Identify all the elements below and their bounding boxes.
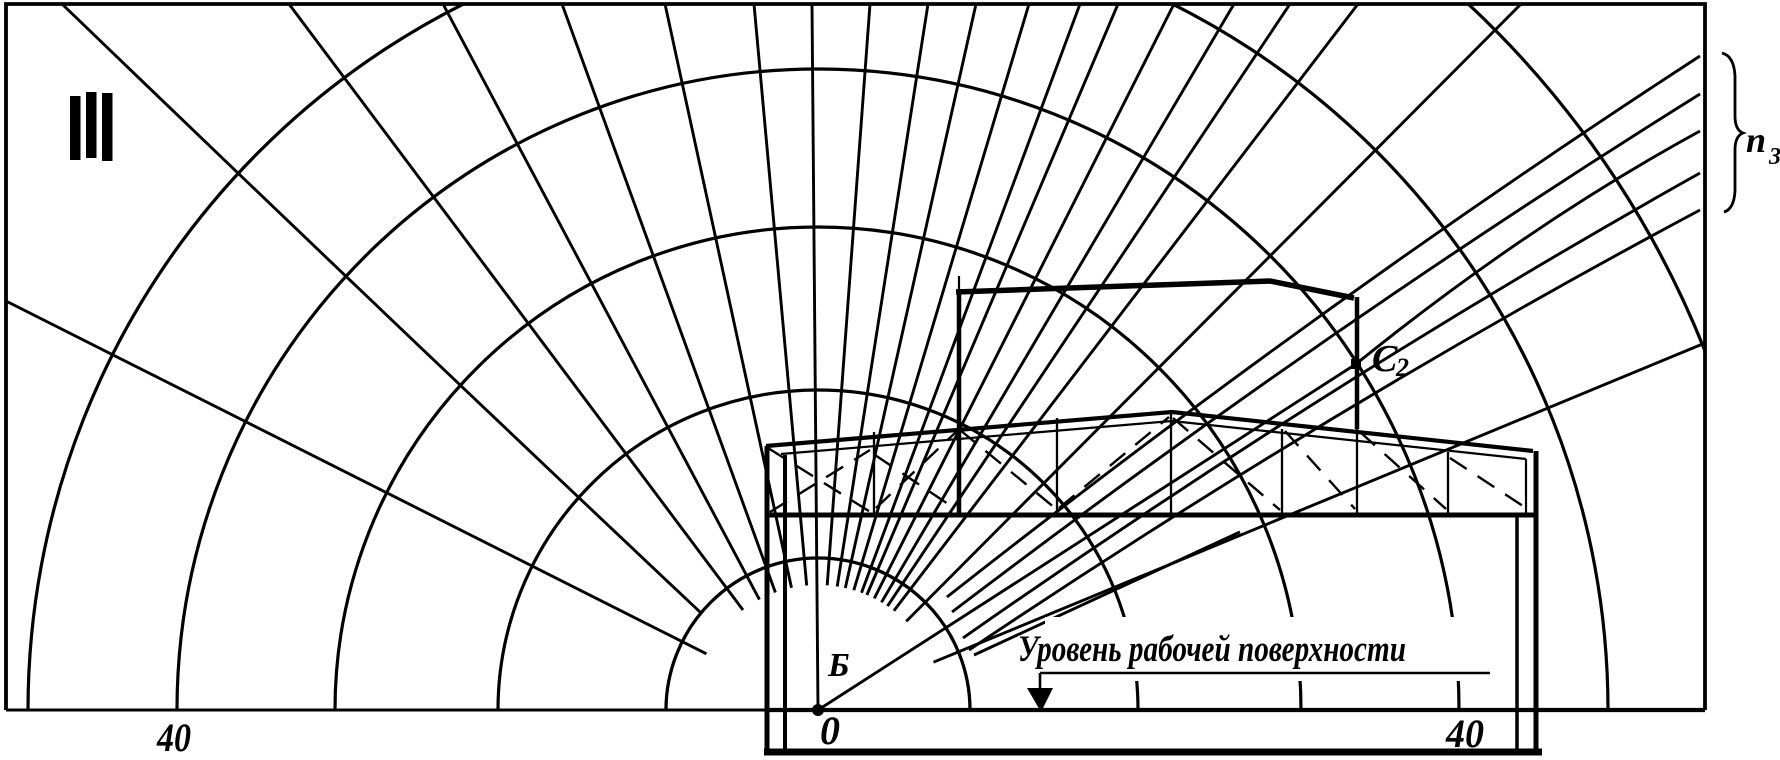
svg-text:40: 40: [1445, 711, 1484, 756]
svg-text:С: С: [1372, 338, 1398, 380]
svg-text:п: п: [1746, 120, 1766, 160]
svg-text:40: 40: [156, 715, 191, 760]
svg-text:2: 2: [1395, 353, 1409, 382]
svg-text:Уровень рабочей поверхности: Уровень рабочей поверхности: [1018, 629, 1406, 670]
svg-text:0: 0: [820, 708, 840, 753]
svg-text:Б: Б: [827, 647, 850, 684]
svg-text:3: 3: [1768, 144, 1780, 170]
